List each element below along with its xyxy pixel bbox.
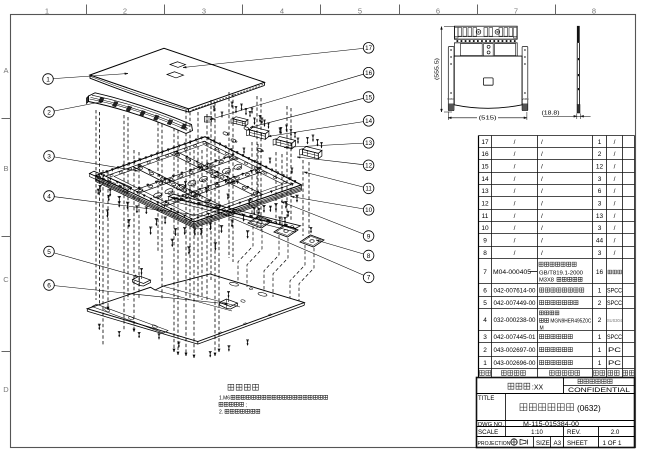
- svg-text:/: /: [541, 139, 543, 146]
- svg-text:/: /: [614, 213, 616, 220]
- svg-text:3: 3: [483, 334, 487, 341]
- svg-text:16: 16: [596, 269, 604, 276]
- svg-text:1: 1: [46, 76, 50, 83]
- svg-text:/: /: [514, 188, 516, 195]
- svg-text:2: 2: [123, 7, 127, 16]
- svg-text:M3X8: M3X8: [539, 278, 554, 284]
- svg-text:/: /: [614, 238, 616, 245]
- svg-text:1: 1: [598, 287, 602, 294]
- svg-text:3: 3: [47, 153, 51, 160]
- svg-text:PROJECTION: PROJECTION: [478, 441, 511, 447]
- svg-text:9: 9: [367, 233, 371, 240]
- svg-text:6: 6: [598, 188, 602, 195]
- svg-text:5: 5: [483, 300, 487, 307]
- svg-text:7: 7: [514, 7, 518, 16]
- svg-text:2: 2: [598, 317, 602, 324]
- svg-text:17: 17: [365, 45, 372, 52]
- svg-text:16: 16: [481, 151, 489, 158]
- svg-text:13: 13: [365, 140, 372, 147]
- svg-text:REV.: REV.: [567, 429, 581, 436]
- svg-text:032-000238-00: 032-000238-00: [494, 318, 537, 324]
- svg-text:8: 8: [592, 7, 596, 16]
- svg-text:M04-000405: M04-000405: [493, 270, 532, 276]
- svg-text:042-007445-01: 042-007445-01: [494, 335, 537, 341]
- svg-text:/: /: [514, 213, 516, 220]
- svg-text:3: 3: [202, 7, 206, 16]
- svg-text:(18.8): (18.8): [542, 111, 560, 117]
- svg-text:SHEET: SHEET: [567, 440, 588, 447]
- svg-text:PC: PC: [608, 348, 622, 354]
- svg-text:(555.5): (555.5): [435, 58, 441, 80]
- svg-text:16: 16: [365, 70, 372, 77]
- svg-text:2.: 2.: [219, 410, 223, 416]
- svg-text:/: /: [514, 151, 516, 158]
- svg-text:14: 14: [365, 118, 372, 125]
- svg-text:14: 14: [481, 176, 489, 183]
- svg-text:(515): (515): [479, 115, 497, 121]
- svg-text:3: 3: [598, 176, 602, 183]
- svg-text:/: /: [614, 188, 616, 195]
- svg-text:C: C: [3, 275, 9, 284]
- svg-text:TITLE: TITLE: [478, 396, 494, 402]
- svg-text:3: 3: [598, 201, 602, 208]
- svg-text:10: 10: [365, 207, 372, 214]
- svg-text:PC: PC: [608, 361, 622, 367]
- svg-text:/: /: [614, 139, 616, 146]
- svg-text:/: /: [614, 151, 616, 158]
- svg-text:SPCC: SPCC: [607, 335, 623, 341]
- svg-text:15: 15: [365, 94, 372, 101]
- svg-text::XX: :XX: [532, 385, 544, 392]
- svg-text:/: /: [614, 176, 616, 183]
- svg-text:13: 13: [596, 213, 604, 220]
- svg-text:/: /: [541, 151, 543, 158]
- svg-text:2: 2: [483, 347, 487, 354]
- svg-text:/: /: [541, 225, 543, 232]
- svg-text:;: ;: [246, 403, 247, 409]
- svg-text:2: 2: [598, 151, 602, 158]
- svg-text:6: 6: [483, 287, 487, 294]
- svg-text:/: /: [541, 164, 543, 171]
- svg-text:SPCC: SPCC: [607, 288, 623, 294]
- svg-text:M4B4: M4B4: [522, 97, 529, 101]
- svg-text:6: 6: [436, 7, 440, 16]
- svg-text:/: /: [541, 238, 543, 245]
- svg-text:M: M: [540, 326, 544, 332]
- svg-text:/: /: [514, 225, 516, 232]
- svg-text:/: /: [541, 201, 543, 208]
- svg-text:8: 8: [367, 253, 371, 260]
- svg-text:1.M6: 1.M6: [219, 396, 230, 402]
- svg-text:2: 2: [47, 109, 51, 116]
- svg-text:15: 15: [481, 164, 489, 171]
- svg-text:5: 5: [358, 7, 362, 16]
- svg-text:MGN9HER495Z0C: MGN9HER495Z0C: [550, 319, 591, 325]
- svg-text:/: /: [514, 201, 516, 208]
- svg-text:17: 17: [481, 139, 489, 146]
- svg-text:4: 4: [483, 317, 487, 324]
- svg-text:SCALE: SCALE: [478, 429, 498, 436]
- svg-text:043-002696-00: 043-002696-00: [494, 361, 537, 367]
- svg-text:042-007449-00: 042-007449-00: [494, 301, 537, 307]
- svg-text:10: 10: [481, 225, 489, 232]
- svg-text:M-115-015384-00: M-115-015384-00: [523, 422, 580, 428]
- svg-text:A: A: [3, 66, 8, 75]
- svg-text:GB/T819.1-2000: GB/T819.1-2000: [539, 271, 583, 277]
- svg-text:/: /: [541, 213, 543, 220]
- svg-text:3: 3: [598, 250, 602, 257]
- svg-text:7: 7: [483, 269, 487, 276]
- svg-text:11: 11: [365, 186, 372, 193]
- svg-text:/: /: [541, 188, 543, 195]
- svg-text:/: /: [614, 225, 616, 232]
- svg-text:D: D: [3, 385, 9, 394]
- svg-text:/: /: [614, 164, 616, 171]
- svg-text:SPCC: SPCC: [607, 301, 623, 307]
- svg-text:1: 1: [598, 334, 602, 341]
- svg-text:12: 12: [481, 201, 489, 208]
- svg-text:7: 7: [367, 275, 371, 282]
- svg-text:2.0: 2.0: [611, 429, 620, 436]
- svg-text:12: 12: [365, 163, 372, 170]
- svg-text:3: 3: [598, 225, 602, 232]
- svg-text:1: 1: [598, 360, 602, 367]
- svg-text:SIZE: SIZE: [536, 440, 550, 447]
- svg-text:8: 8: [483, 250, 487, 257]
- svg-text:B: B: [3, 164, 8, 173]
- svg-text:CONFIDENTIAL: CONFIDENTIAL: [568, 387, 631, 394]
- svg-text:/: /: [514, 164, 516, 171]
- svg-text:/: /: [514, 238, 516, 245]
- svg-text:11: 11: [482, 213, 489, 220]
- svg-text:M4B4: M4B4: [447, 97, 454, 101]
- svg-text:A3: A3: [554, 440, 562, 447]
- svg-text:1:10: 1:10: [531, 430, 543, 436]
- svg-text:1: 1: [598, 139, 602, 146]
- svg-text:/: /: [541, 250, 543, 257]
- svg-text:13: 13: [481, 188, 489, 195]
- svg-text:4: 4: [280, 7, 284, 16]
- svg-text:5: 5: [47, 249, 51, 256]
- svg-text:/: /: [514, 139, 516, 146]
- svg-text:DWG NO.: DWG NO.: [478, 422, 504, 428]
- svg-text:9: 9: [483, 238, 487, 245]
- svg-text:042-007614-00: 042-007614-00: [494, 288, 537, 294]
- svg-text:/: /: [614, 201, 616, 208]
- svg-text:12: 12: [596, 164, 604, 171]
- svg-text:/: /: [514, 250, 516, 257]
- svg-text:043-002697-00: 043-002697-00: [494, 348, 537, 354]
- svg-text:/: /: [541, 176, 543, 183]
- svg-text:/: /: [614, 250, 616, 257]
- svg-text:4: 4: [47, 193, 51, 200]
- svg-text:/: /: [514, 176, 516, 183]
- svg-text:SUS304: SUS304: [607, 318, 622, 323]
- svg-text:(0632): (0632): [577, 404, 601, 413]
- svg-text:2: 2: [598, 300, 602, 307]
- svg-text:1: 1: [45, 7, 49, 16]
- svg-text:6: 6: [47, 282, 51, 289]
- svg-text:1: 1: [483, 360, 487, 367]
- svg-text:1 OF 1: 1 OF 1: [603, 440, 622, 447]
- svg-text:1: 1: [598, 347, 602, 354]
- svg-text:44: 44: [596, 238, 604, 245]
